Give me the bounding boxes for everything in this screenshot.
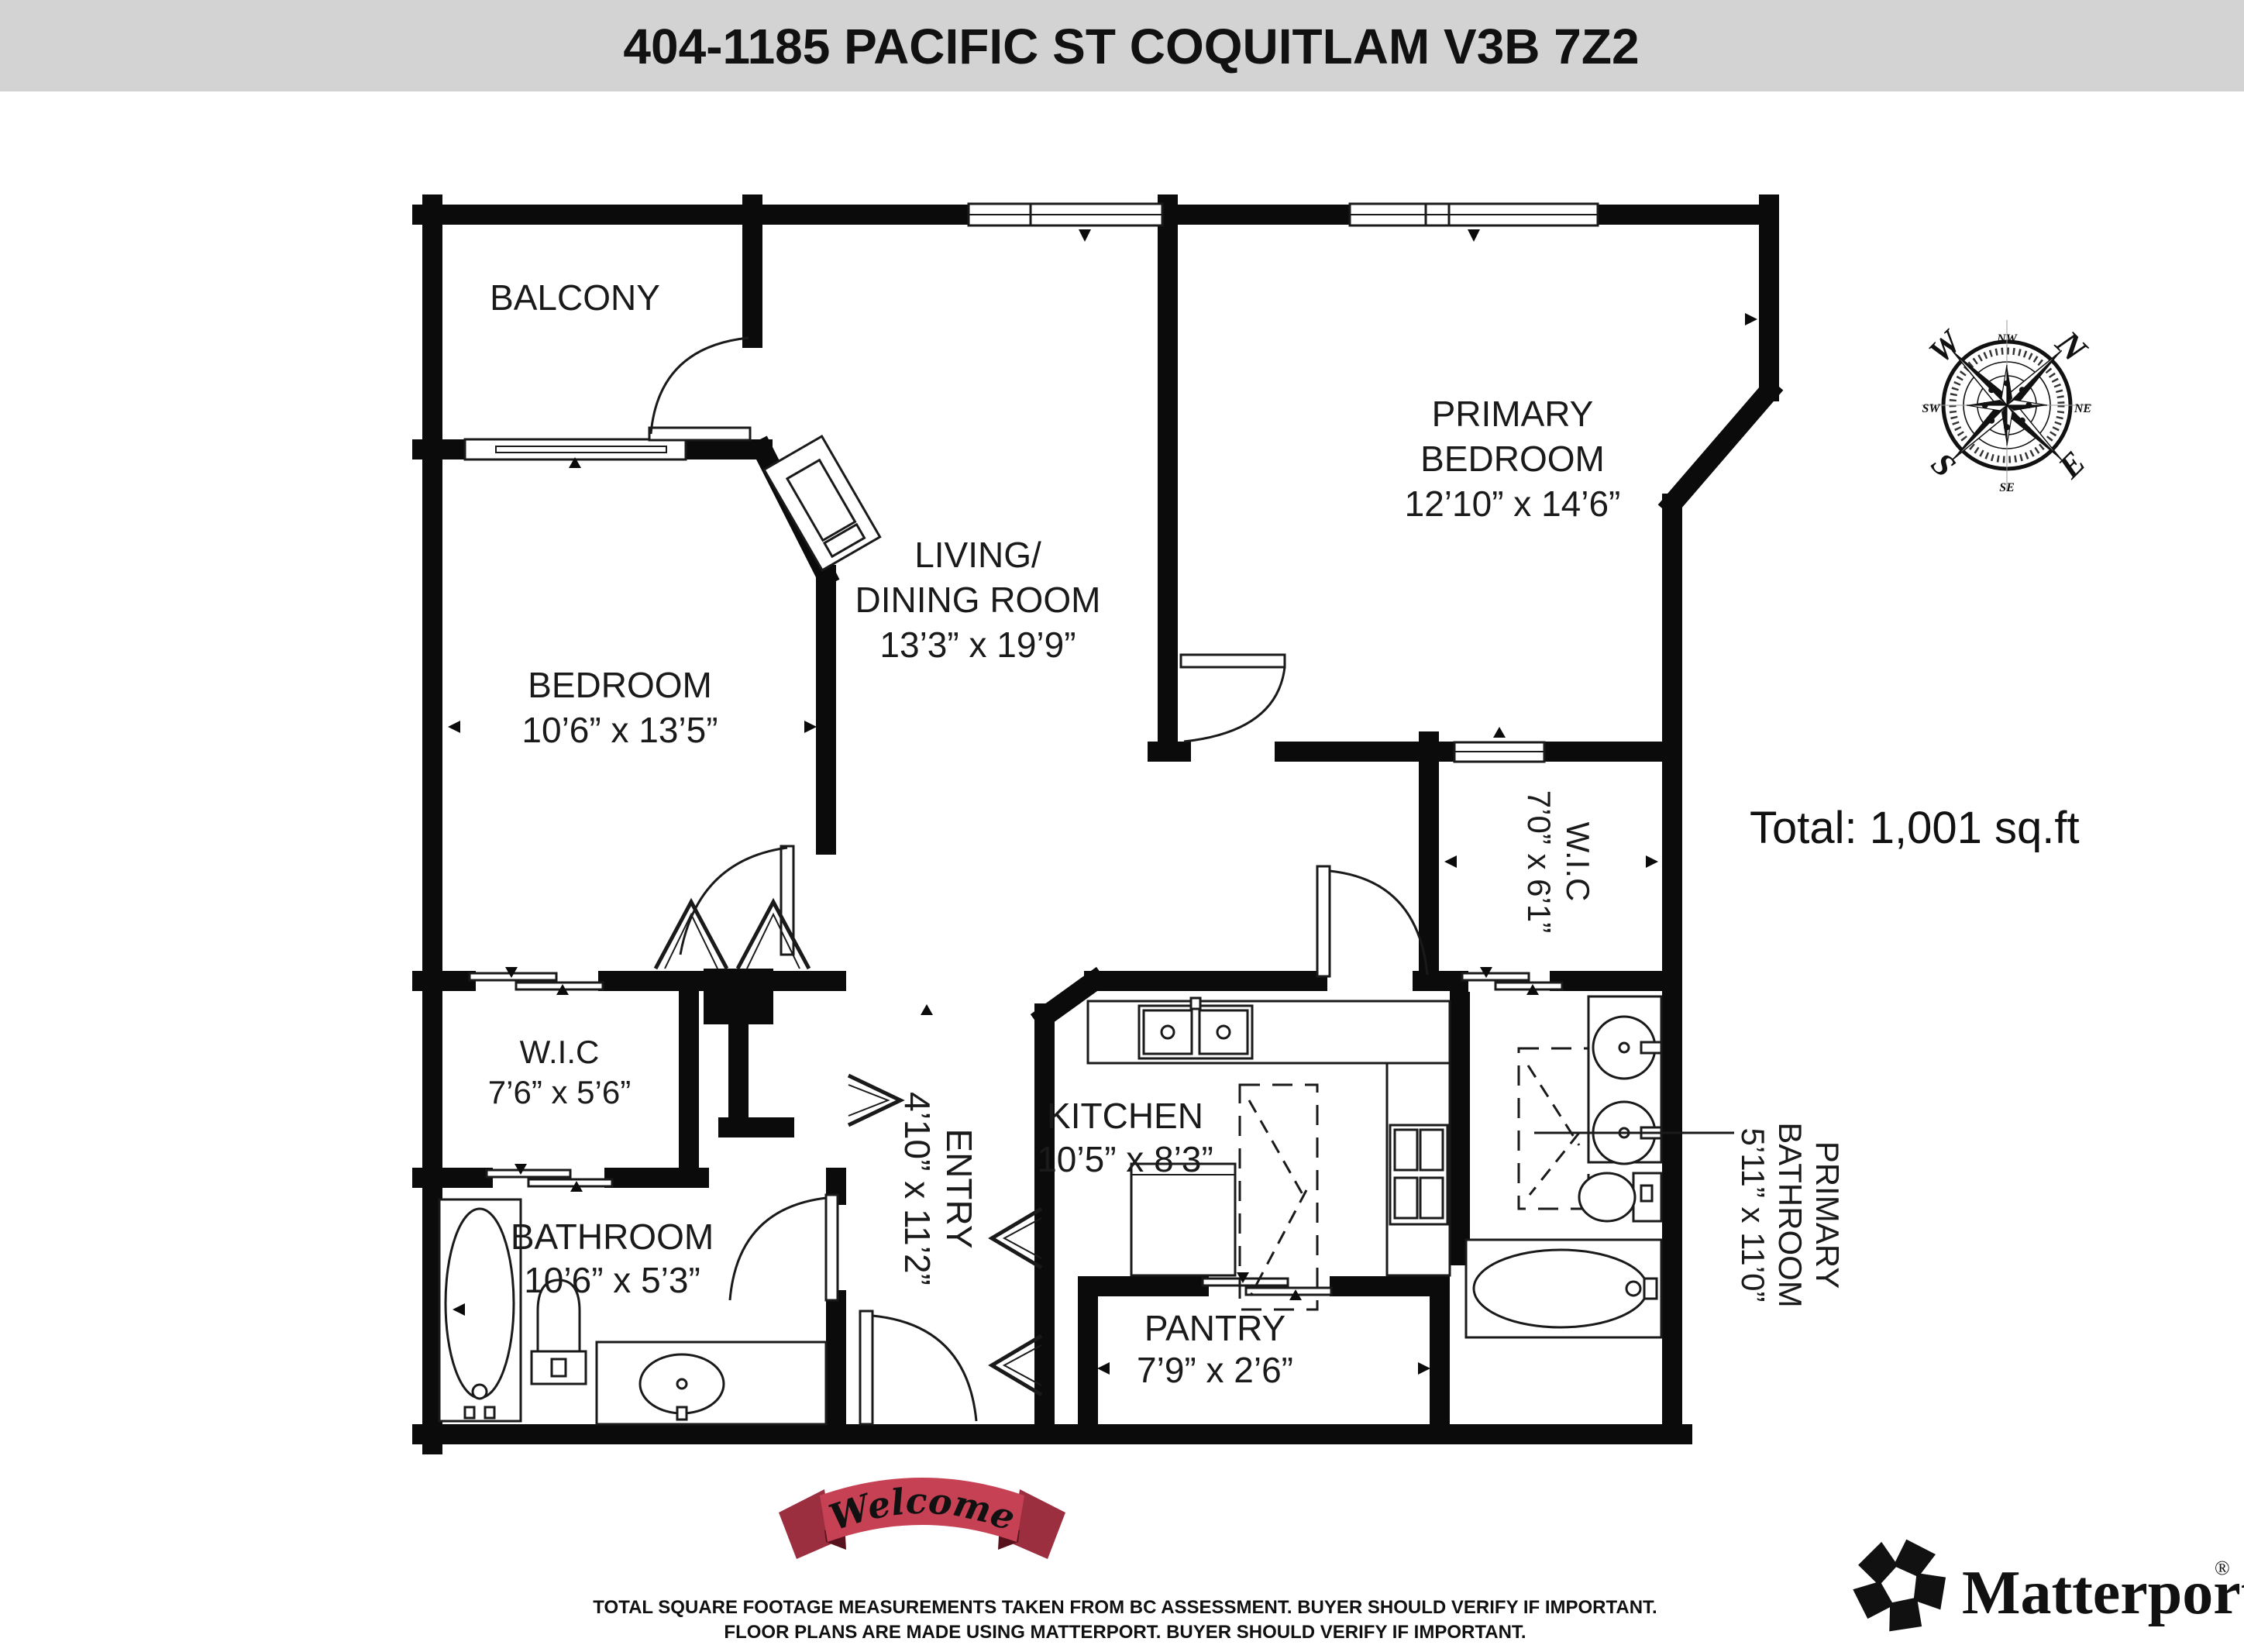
page-title: 404-1185 PACIFIC ST COQUITLAM V3B 7Z2 — [623, 19, 1639, 74]
matterport-mark-icon — [1840, 1532, 1960, 1648]
compass-sw: SW — [1922, 402, 1941, 415]
tick — [1418, 1362, 1430, 1375]
label-primary-bathroom-dims: 5’11” x 11’0” — [1735, 1128, 1771, 1303]
door-balcony — [649, 338, 750, 440]
shower-icon — [1519, 1048, 1588, 1209]
tick — [1097, 1362, 1110, 1375]
label-kitchen: KITCHEN — [1047, 1096, 1203, 1136]
primary-bathroom-fixtures — [1466, 996, 1734, 1337]
label-pantry: PANTRY — [1144, 1308, 1285, 1348]
fridge-icon — [1131, 1164, 1235, 1275]
bathtub-icon — [439, 1199, 521, 1421]
vanity-sink-icon — [597, 1342, 826, 1424]
tick — [921, 1004, 933, 1015]
tick — [1468, 229, 1480, 242]
sliding-door-bedroom — [470, 970, 603, 992]
door-primary-bedroom — [1181, 655, 1285, 742]
stove-icon — [1390, 1125, 1447, 1224]
label-bathroom-dims: 10’6” x 5’3” — [524, 1260, 700, 1300]
sliding-door-pantry — [1203, 1275, 1331, 1297]
door-hallway — [1317, 866, 1427, 976]
bifold-entry-closet-2 — [992, 1336, 1041, 1395]
compass-rose-icon: N W S E NW NE SE SW — [1898, 296, 2117, 515]
label-kitchen-dims: 10’5” x 8’3” — [1037, 1139, 1213, 1179]
label-living-dims: 13’3” x 19’9” — [879, 625, 1076, 665]
label-entry-dims: 4’10” x 11’2” — [897, 1092, 938, 1285]
primary-toilet-icon — [1579, 1173, 1661, 1221]
matterport-logo: Matterport ® — [1840, 1532, 2244, 1648]
bifold-entry-closet-1 — [992, 1209, 1041, 1268]
label-wic-primary-dims: 7’0” x 6’1” — [1521, 790, 1557, 933]
tick — [1646, 855, 1658, 868]
disclaimer-line-1: TOTAL SQUARE FOOTAGE MEASUREMENTS TAKEN … — [593, 1597, 1657, 1618]
total-area-text: Total: 1,001 sq.ft — [1750, 803, 2080, 853]
tick — [1444, 855, 1457, 868]
tick — [1079, 229, 1091, 242]
label-primary-bathroom-group: PRIMARY BATHROOM 5’11” x 11’0” — [1735, 1122, 1846, 1308]
tick — [804, 721, 817, 733]
label-primary-bathroom-1: PRIMARY — [1809, 1141, 1846, 1289]
window-balcony-railing — [465, 439, 686, 459]
bifold-entry-top — [848, 1076, 900, 1125]
label-living-2: DINING ROOM — [855, 580, 1101, 620]
label-entry-group: ENTRY 4’10” x 11’2” — [897, 1092, 979, 1285]
compass-ne: NE — [2074, 402, 2091, 415]
compass-e: E — [2052, 445, 2093, 486]
label-entry: ENTRY — [939, 1128, 979, 1248]
bifold-bedroom-2 — [738, 902, 809, 969]
label-wic-primary: W.I.C — [1560, 822, 1596, 902]
compass-s: S — [1924, 446, 1962, 484]
door-front — [860, 1311, 976, 1424]
tick — [448, 721, 460, 733]
label-pantry-dims: 7’9” x 2’6” — [1137, 1350, 1293, 1390]
label-bedroom: BEDROOM — [528, 665, 712, 705]
bifold-bedroom-1b — [665, 914, 718, 969]
label-primary-bathroom-2: BATHROOM — [1772, 1122, 1809, 1308]
primary-bathtub-icon — [1466, 1240, 1661, 1337]
kitchen-sink-icon — [1139, 998, 1252, 1058]
label-balcony: BALCONY — [490, 277, 660, 318]
welcome-mat: Welcome — [779, 1478, 1065, 1559]
disclaimer-line-2: FLOOR PLANS ARE MADE USING MATTERPORT. B… — [724, 1622, 1526, 1643]
window-living — [969, 204, 1162, 225]
wall-right-chamfer — [1672, 391, 1769, 504]
label-primary-bedroom-1: PRIMARY — [1432, 394, 1594, 434]
window-wic-primary — [1454, 742, 1544, 762]
label-primary-bedroom-dims: 12’10” x 14’6” — [1405, 484, 1621, 524]
bifold-bedroom-1 — [656, 902, 727, 969]
label-bedroom-dims: 10’6” x 13’5” — [521, 710, 718, 750]
floor-plan-page: 404-1185 PACIFIC ST COQUITLAM V3B 7Z2 — [0, 0, 2244, 1652]
label-bathroom: BATHROOM — [511, 1217, 714, 1257]
label-wic-left: W.I.C — [520, 1034, 600, 1070]
compass-nw: NW — [1996, 332, 2019, 346]
tick — [1745, 313, 1757, 325]
window-primary-bedroom — [1350, 204, 1598, 225]
label-primary-bedroom-2: BEDROOM — [1420, 439, 1605, 479]
label-wic-primary-group: W.I.C 7’0” x 6’1” — [1521, 790, 1596, 933]
floor-plan-canvas: 404-1185 PACIFIC ST COQUITLAM V3B 7Z2 — [0, 0, 2244, 1652]
door-bedroom — [680, 846, 793, 955]
door-bathroom — [730, 1195, 838, 1300]
tick — [1493, 727, 1506, 738]
primary-vanity-icon — [1588, 996, 1661, 1164]
compass-se: SE — [1999, 481, 2015, 494]
label-wic-left-dims: 7’6” x 5’6” — [488, 1074, 631, 1110]
registered-mark: ® — [2215, 1557, 2230, 1579]
matterport-wordmark: Matterport — [1962, 1559, 2244, 1627]
sliding-door-wic-left — [487, 1167, 612, 1189]
label-living-1: LIVING/ — [914, 535, 1041, 575]
sliding-door-wic-primary — [1462, 970, 1562, 992]
disclaimer: TOTAL SQUARE FOOTAGE MEASUREMENTS TAKEN … — [593, 1597, 1657, 1643]
